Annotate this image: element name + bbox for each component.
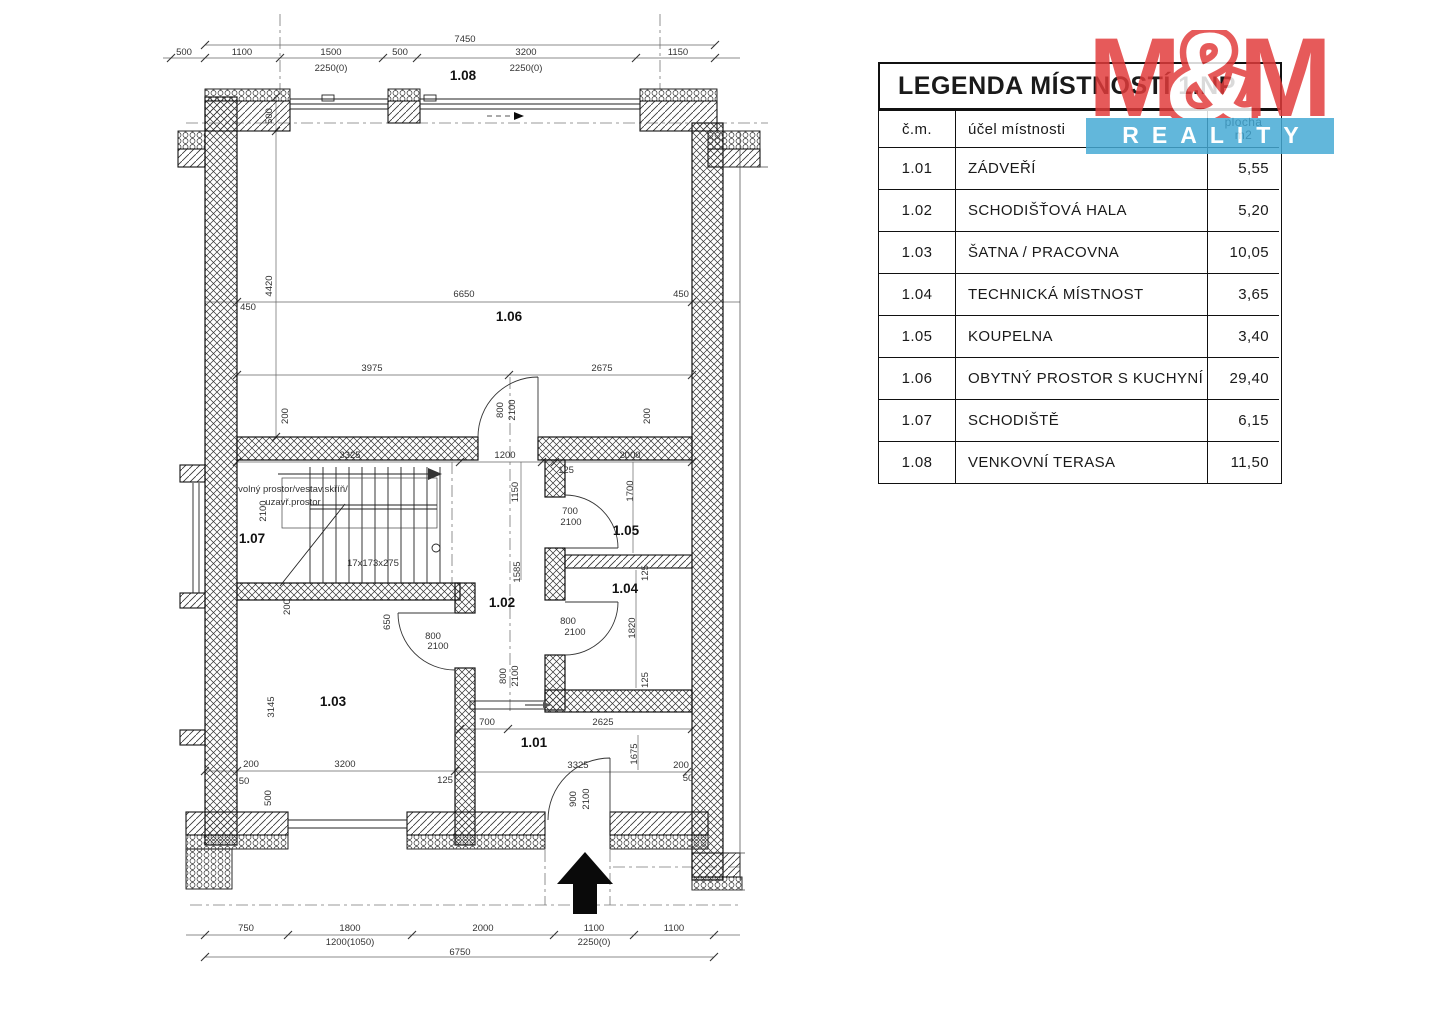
- dimension-label: 3200: [334, 759, 355, 770]
- room-area: 29,40: [1207, 357, 1279, 399]
- dimension-label: 3975: [361, 363, 382, 374]
- room-number-label: 1.01: [521, 735, 548, 750]
- room-number-label: 1.08: [450, 68, 477, 83]
- room-number-label: 1.06: [496, 309, 523, 324]
- room-number: 1.07: [879, 399, 956, 441]
- dimension-label: 500: [263, 790, 274, 806]
- room-area: 3,65: [1207, 273, 1279, 315]
- dimension-label: 800: [495, 402, 506, 418]
- legend-table-row: 1.08 VENKOVNÍ TERASA 11,50: [879, 441, 1281, 483]
- dimension-label: 1150: [510, 482, 521, 502]
- dimension-label: 450: [673, 289, 689, 300]
- dimension-label: 1800: [339, 923, 360, 934]
- dimension-label: 200: [243, 759, 259, 770]
- dimension-label: 2000: [619, 450, 640, 461]
- dimension-label: 450: [240, 302, 256, 313]
- dimension-label: 200: [280, 408, 291, 424]
- dimension-label: 125: [640, 565, 651, 581]
- dimension-label: 200: [642, 408, 653, 424]
- dimension-label: 3145: [266, 696, 277, 717]
- dimension-label: 125: [558, 465, 574, 476]
- dimension-label: 800: [498, 668, 509, 684]
- dimension-label: 2100: [507, 399, 518, 420]
- room-number-label: 1.02: [489, 595, 515, 610]
- dimension-label: 3325: [339, 450, 360, 461]
- dimension-label: 6650: [453, 289, 474, 300]
- room-purpose: KOUPELNA: [956, 315, 1207, 357]
- mm-reality-logo-graphic: M M & REALITY: [1086, 30, 1334, 156]
- dimension-label: 4420: [264, 275, 275, 296]
- dimension-label: 2100: [427, 641, 448, 652]
- room-area: 11,50: [1207, 441, 1279, 483]
- dimension-label: 6750: [449, 947, 470, 958]
- dimension-label: 1100: [232, 47, 252, 58]
- dimension-label: 2100: [258, 500, 269, 521]
- dimension-label: 125: [640, 672, 651, 688]
- dimension-label: 1200: [494, 450, 515, 461]
- dimension-label: 1150: [668, 47, 688, 58]
- room-number: 1.02: [879, 189, 956, 231]
- windows-group: [193, 95, 640, 828]
- room-area: 5,20: [1207, 189, 1279, 231]
- dimension-label: 1700: [625, 480, 636, 501]
- legend-table-row: 1.07 SCHODIŠTĚ 6,15: [879, 399, 1281, 441]
- dimension-label: 1200(1050): [326, 937, 375, 948]
- dimension-label: 50: [683, 773, 694, 784]
- room-number-label: 1.07: [239, 531, 265, 546]
- dimension-label: 2100: [581, 788, 592, 809]
- room-number: 1.06: [879, 357, 956, 399]
- dimension-label: 1500: [320, 47, 341, 58]
- dimension-label: 1820: [627, 617, 638, 638]
- room-number-label: 1.04: [612, 581, 639, 596]
- dimension-label: 500: [392, 47, 408, 58]
- dimension-label: 1100: [584, 923, 604, 934]
- room-number: 1.01: [879, 147, 956, 189]
- dimension-label: 650: [382, 614, 393, 630]
- dimension-label: 200: [673, 760, 689, 771]
- logo-reality-text: REALITY: [1122, 122, 1311, 148]
- dimension-label: 3200: [515, 47, 536, 58]
- room-area: 3,40: [1207, 315, 1279, 357]
- dimension-label: 50: [239, 776, 250, 787]
- dimension-label: 2100: [560, 517, 581, 528]
- room-number: 1.04: [879, 273, 956, 315]
- room-number: 1.03: [879, 231, 956, 273]
- dimension-label: 2000: [472, 923, 493, 934]
- dimension-label: 2675: [591, 363, 612, 374]
- dimension-label: 750: [238, 923, 254, 934]
- room-number-label: 1.03: [320, 694, 347, 709]
- dimension-label: 200: [282, 599, 293, 615]
- dimension-label: 2250(0): [510, 63, 543, 74]
- dimension-label: 800: [560, 616, 576, 627]
- dimension-label: 500: [264, 108, 275, 124]
- dimension-label: 1675: [629, 743, 640, 764]
- dimension-label: 17x173x275: [347, 558, 399, 569]
- room-area: 6,15: [1207, 399, 1279, 441]
- dimension-label: 500: [176, 47, 192, 58]
- dimension-label: 700: [479, 717, 495, 728]
- room-purpose: OBYTNÝ PROSTOR S KUCHYNÍ: [956, 357, 1207, 399]
- room-purpose: SCHODIŠTĚ: [956, 399, 1207, 441]
- dimension-label: 2100: [564, 627, 585, 638]
- room-area: 10,05: [1207, 231, 1279, 273]
- dimension-label: 2250(0): [578, 937, 611, 948]
- legend-table: č.m. účel místnosti plocha m2 1.01 ZÁDVE…: [878, 110, 1282, 484]
- legend-table-row: 1.02 SCHODIŠŤOVÁ HALA 5,20: [879, 189, 1281, 231]
- legend-col-number: č.m.: [879, 110, 956, 147]
- dimension-label: 1585: [512, 561, 523, 582]
- dimension-label: 2100: [510, 665, 521, 686]
- sliding-direction-arrow: [514, 112, 524, 120]
- dimension-label: uzavř.prostor: [265, 497, 320, 508]
- dimension-label: 900: [568, 791, 579, 807]
- dimension-label: 2625: [592, 717, 613, 728]
- room-purpose: ŠATNA / PRACOVNA: [956, 231, 1207, 273]
- room-number-label: 1.05: [613, 523, 640, 538]
- mm-reality-logo: M M & REALITY: [1086, 30, 1334, 161]
- dimension-label: volný prostor/vestav.skříň/: [238, 484, 348, 495]
- dimension-label: 2250(0): [315, 63, 348, 74]
- legend-table-row: 1.06 OBYTNÝ PROSTOR S KUCHYNÍ 29,40: [879, 357, 1281, 399]
- floorplan-page: 7450500110015002250(0)50032002250(0)1150…: [0, 0, 1440, 1018]
- room-purpose: TECHNICKÁ MÍSTNOST: [956, 273, 1207, 315]
- floor-plan-drawing: 7450500110015002250(0)50032002250(0)1150…: [0, 0, 820, 1018]
- dimension-label: 1100: [664, 923, 684, 934]
- dimension-label: 3325: [567, 760, 588, 771]
- room-number: 1.08: [879, 441, 956, 483]
- room-number: 1.05: [879, 315, 956, 357]
- legend-table-row: 1.03 ŠATNA / PRACOVNA 10,05: [879, 231, 1281, 273]
- legend-table-row: 1.04 TECHNICKÁ MÍSTNOST 3,65: [879, 273, 1281, 315]
- room-purpose: SCHODIŠŤOVÁ HALA: [956, 189, 1207, 231]
- dimension-label: 125: [437, 775, 453, 786]
- room-purpose: VENKOVNÍ TERASA: [956, 441, 1207, 483]
- legend-table-row: 1.05 KOUPELNA 3,40: [879, 315, 1281, 357]
- dimension-label: 7450: [454, 34, 475, 45]
- dimension-label: 700: [562, 506, 578, 517]
